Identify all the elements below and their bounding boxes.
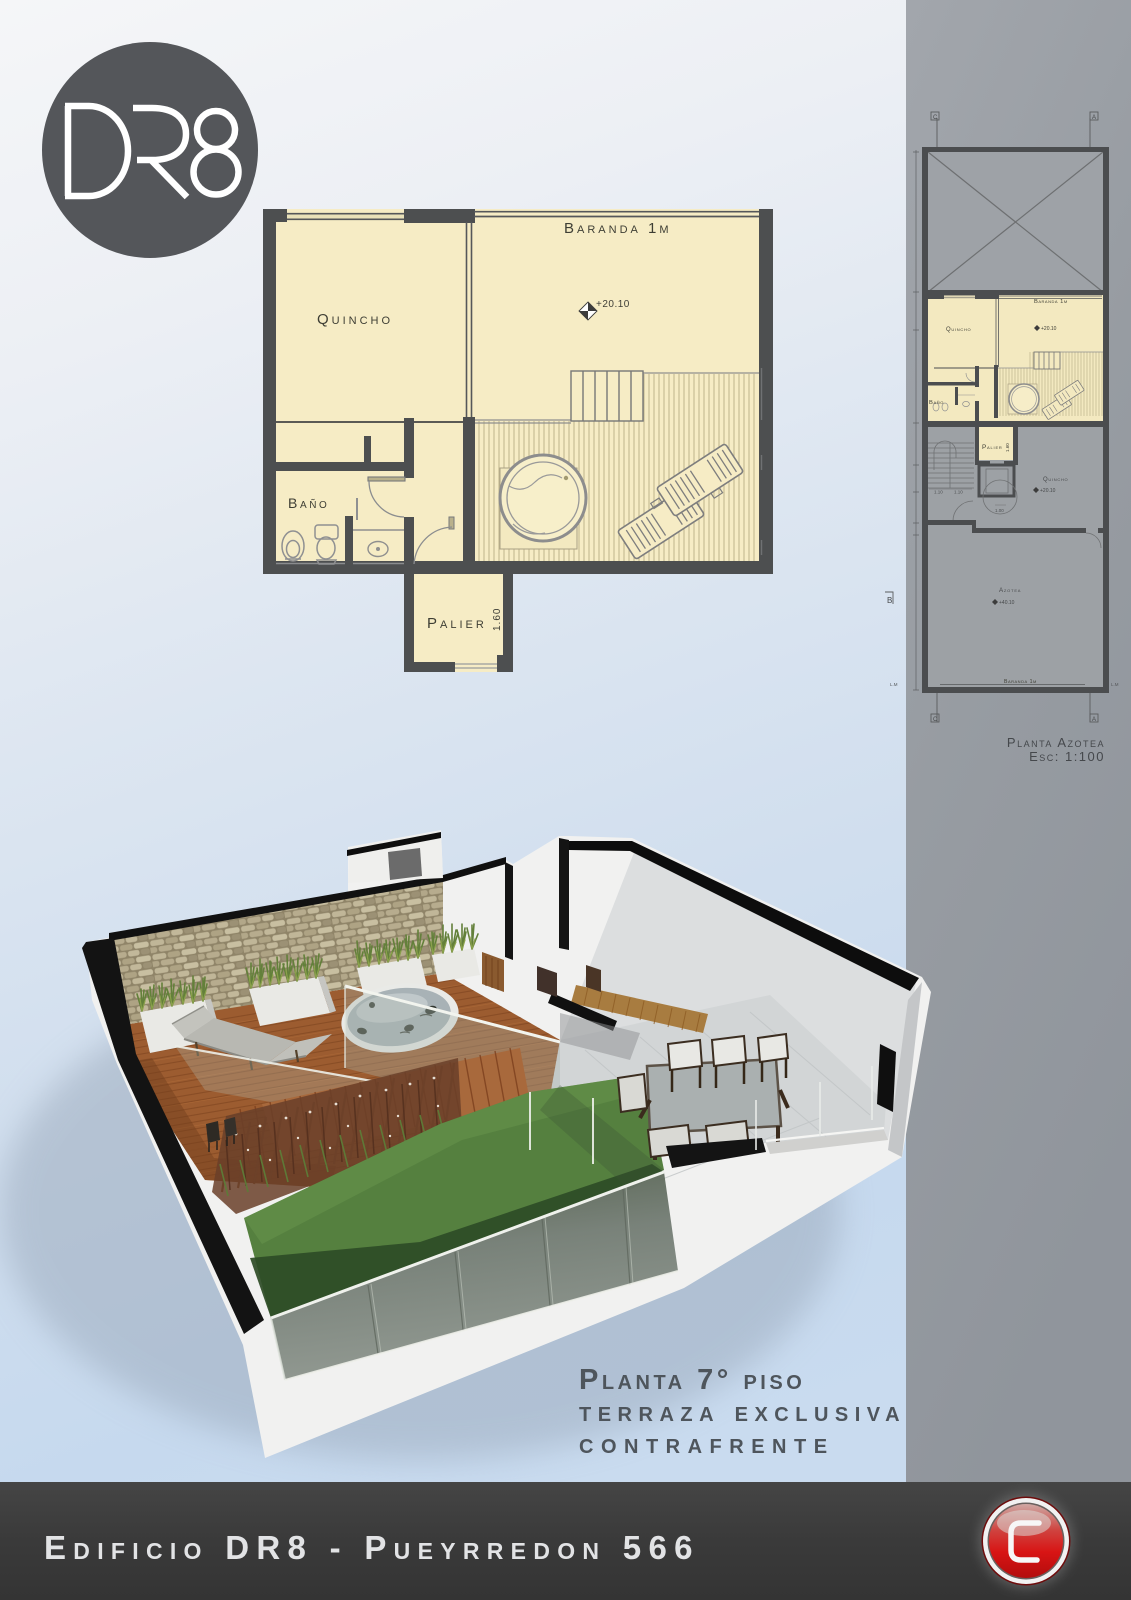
svg-text:1.60: 1.60 <box>1005 443 1010 452</box>
svg-text:Baño: Baño <box>288 495 329 511</box>
svg-text:Baño: Baño <box>929 400 944 406</box>
svg-text:Esc: 1:100: Esc: 1:100 <box>1029 749 1105 764</box>
svg-text:Planta 7° piso: Planta 7° piso <box>579 1364 805 1396</box>
svg-text:L.M: L.M <box>1111 682 1119 687</box>
svg-text:1.10: 1.10 <box>954 490 963 495</box>
svg-text:Planta Azotea: Planta Azotea <box>1007 735 1105 750</box>
svg-text:Palier: Palier <box>982 444 1003 451</box>
svg-text:+20.10: +20.10 <box>596 299 630 310</box>
svg-text:Baranda 1m: Baranda 1m <box>564 220 672 237</box>
svg-text:C: C <box>933 717 938 723</box>
svg-text:contrafrente: contrafrente <box>579 1428 835 1460</box>
svg-text:Quincho: Quincho <box>317 311 393 328</box>
svg-text:+20.10: +20.10 <box>1040 488 1056 494</box>
svg-text:+20.10: +20.10 <box>1041 326 1057 332</box>
svg-text:L.M: L.M <box>890 682 898 687</box>
svg-text:Edificio DR8 - Pueyrredon 566: Edificio DR8 - Pueyrredon 566 <box>44 1529 700 1566</box>
svg-text:Quincho: Quincho <box>946 327 971 333</box>
svg-text:1.60: 1.60 <box>492 608 503 631</box>
svg-text:C: C <box>933 115 938 121</box>
svg-text:A: A <box>1092 717 1096 723</box>
svg-text:Palier: Palier <box>427 615 487 632</box>
svg-text:Azotea: Azotea <box>999 587 1021 594</box>
svg-text:Quincho: Quincho <box>1043 477 1068 483</box>
svg-text:1.10: 1.10 <box>934 490 943 495</box>
svg-text:+40.10: +40.10 <box>999 600 1015 606</box>
svg-text:terraza exclusiva: terraza exclusiva <box>579 1396 906 1428</box>
svg-text:Baranda 1m: Baranda 1m <box>1034 299 1068 305</box>
svg-text:A: A <box>1092 115 1096 121</box>
svg-text:B: B <box>887 596 892 605</box>
svg-text:1.00: 1.00 <box>995 508 1004 513</box>
